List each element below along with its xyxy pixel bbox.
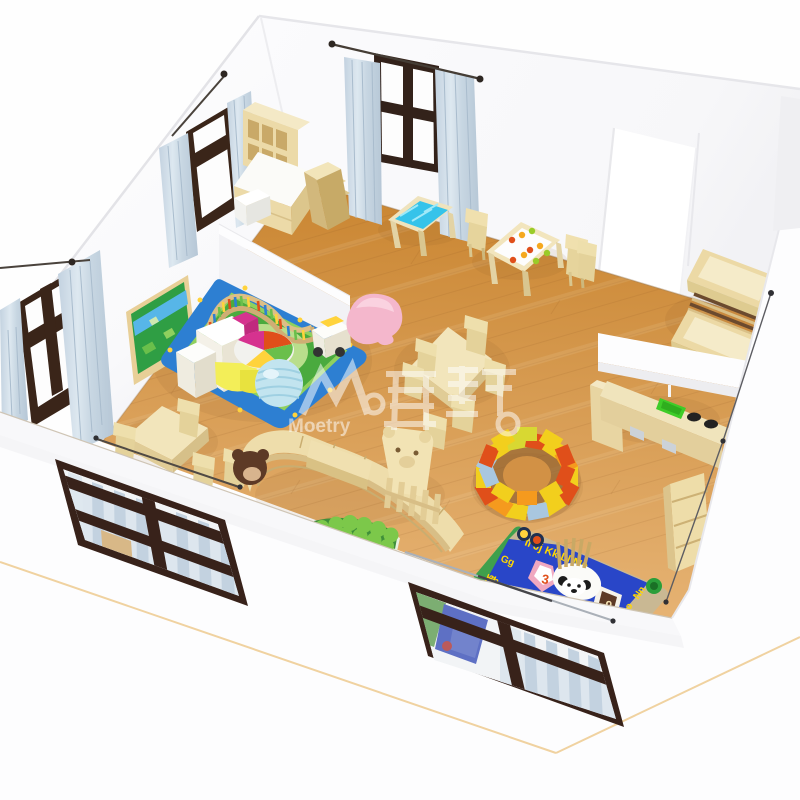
- svg-text:Moetry: Moetry: [288, 416, 351, 437]
